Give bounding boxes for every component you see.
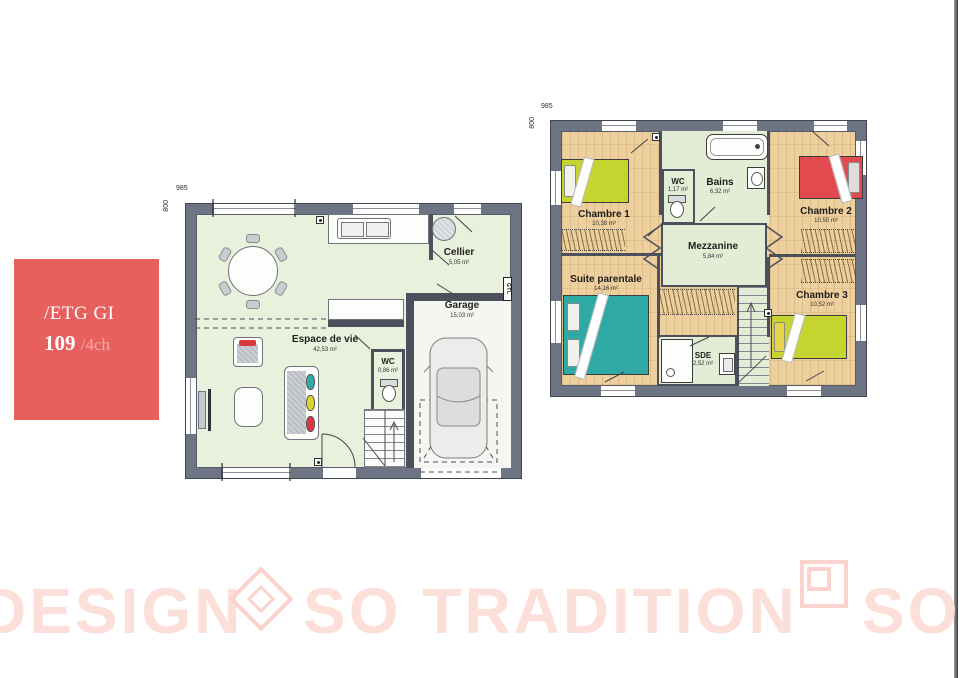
toilet-bowl-upper [670, 201, 684, 218]
garage-door-opening [421, 468, 501, 478]
kitchen-island [328, 299, 404, 320]
garage-room [406, 293, 511, 468]
partition-wall [429, 214, 433, 260]
watermark-so: SO [862, 574, 960, 648]
dining-set [211, 229, 311, 329]
chair [274, 280, 289, 297]
sink-basin [723, 358, 733, 372]
chair [246, 234, 260, 243]
partition-wall [328, 320, 404, 327]
bathroom-sink [747, 167, 765, 189]
room-area-suite: 14,16 m² [594, 286, 618, 292]
window [551, 171, 561, 205]
tv-stand [198, 391, 206, 429]
staircase-upper [737, 287, 769, 386]
room-label-mezzanine: Mezzanine [688, 241, 738, 252]
uf-dim-height: 800 [529, 117, 536, 129]
pillow [567, 303, 580, 331]
uf-dim-width: 985 [541, 103, 553, 110]
sofa [284, 366, 319, 440]
room-area-mezzanine: 5,84 m² [703, 254, 723, 260]
room-area-chambre1: 10,38 m² [592, 221, 616, 227]
garage-floor [414, 301, 511, 468]
room-label-bains: Bains [706, 177, 733, 188]
staircase [364, 409, 405, 468]
plan-code: /ETG GI [44, 303, 115, 325]
partition-wall [769, 254, 856, 257]
pillow [774, 322, 785, 352]
watermark-design: DESIGN [0, 574, 243, 648]
door-opening [454, 204, 481, 214]
sofa-cushion-red [306, 416, 315, 432]
chair [246, 300, 260, 309]
room-label-garage: Garage [445, 300, 479, 311]
window [223, 468, 291, 478]
armchair [233, 337, 263, 367]
entrance-door-opening [323, 468, 356, 478]
wc-room: WC 0,86 m² [371, 349, 405, 413]
bed-chambre-1 [561, 159, 629, 203]
room-area-sde: 2,52 m² [693, 361, 713, 367]
kitchen-sink [337, 218, 391, 239]
room-label-wc: WC [381, 357, 394, 366]
plan-number-line: 109 /4ch [44, 331, 115, 356]
room-label-suite: Suite parentale [570, 274, 642, 285]
window [856, 305, 866, 341]
window [353, 204, 419, 214]
sofa-cushion-yellow [306, 395, 315, 411]
sink-basin [341, 222, 364, 237]
plan-info-card: /ETG GI 109 /4ch [14, 259, 159, 420]
window [723, 121, 757, 131]
diamond-logo-icon [232, 570, 288, 626]
window [602, 121, 636, 131]
bed-chambre-2 [799, 156, 863, 199]
detector-symbol [314, 458, 322, 466]
dining-table [228, 246, 278, 296]
room-area-cellier: 5,05 m² [449, 260, 469, 266]
bathtub [706, 134, 768, 160]
bed-chambre-3 [771, 315, 847, 359]
watermark-so-tradition: SO TRADITION [303, 574, 798, 648]
window [214, 204, 296, 214]
kitchen-counter [328, 214, 429, 244]
water-heater [432, 217, 456, 241]
wardrobe [659, 289, 735, 315]
room-label-wc-upper: WC [671, 177, 684, 186]
partition-wall [767, 257, 770, 337]
armchair-seat [237, 344, 258, 363]
room-label-chambre2: Chambre 2 [800, 206, 852, 217]
garage-wall [406, 293, 414, 468]
window [814, 121, 847, 131]
window [787, 386, 821, 396]
ground-floor-plan: GTL WC 0,86 m [185, 203, 522, 479]
toilet-bowl [382, 385, 396, 402]
partition-wall [659, 131, 662, 215]
wardrobe [561, 229, 625, 251]
detector-symbol [316, 216, 324, 224]
sde-sink [719, 353, 735, 375]
window [601, 386, 635, 396]
upper-floor-plan: Chambre 1 10,38 m² WC 1,17 m² Bains 6,32… [550, 120, 867, 397]
detector-symbol [764, 309, 772, 317]
tv-screen [208, 389, 211, 431]
floorplan-sheet: /ETG GI 109 /4ch 985 800 985 800 [0, 0, 960, 678]
plan-number: 109 [44, 331, 76, 355]
wardrobe [801, 259, 856, 283]
gtl-box: GTL [503, 277, 512, 301]
partition-wall [561, 253, 661, 256]
gf-dim-height: 800 [163, 200, 170, 212]
sofa-seat [287, 371, 306, 434]
room-label-chambre1: Chambre 1 [578, 209, 630, 220]
room-label-sde: SDE [695, 351, 711, 360]
window [551, 301, 561, 343]
coffee-table [234, 387, 263, 427]
room-area-chambre3: 10,52 m² [810, 302, 834, 308]
bed-suite-parentale [563, 295, 649, 375]
room-area-wc: 0,86 m² [378, 368, 398, 374]
room-area-garage: 15,03 m² [450, 313, 474, 319]
room-label-cellier: Cellier [444, 247, 475, 258]
bathtub-drain [755, 144, 760, 149]
wardrobe [801, 229, 856, 253]
room-area-chambre2: 10,50 m² [814, 218, 838, 224]
detector-symbol [652, 133, 660, 141]
shower [661, 339, 693, 383]
sink-basin [366, 222, 389, 237]
plan-info-text: /ETG GI 109 /4ch [44, 303, 115, 356]
window [186, 378, 196, 434]
plan-variant: /4ch [81, 335, 110, 354]
room-area-wc-upper: 1,17 m² [668, 187, 688, 193]
room-label-espace: Espace de vie [292, 334, 358, 345]
square-inner [807, 567, 831, 591]
square-logo-icon [800, 560, 844, 604]
room-area-espace: 42,53 m² [313, 347, 337, 353]
room-area-bains: 6,32 m² [710, 189, 730, 195]
pillow [848, 162, 860, 193]
room-label-chambre3: Chambre 3 [796, 290, 848, 301]
gf-dim-width: 985 [176, 185, 188, 192]
sink-basin [751, 172, 763, 186]
sofa-cushion-teal [306, 374, 315, 390]
shower-drain [666, 368, 675, 377]
armchair-cushion [239, 340, 256, 346]
